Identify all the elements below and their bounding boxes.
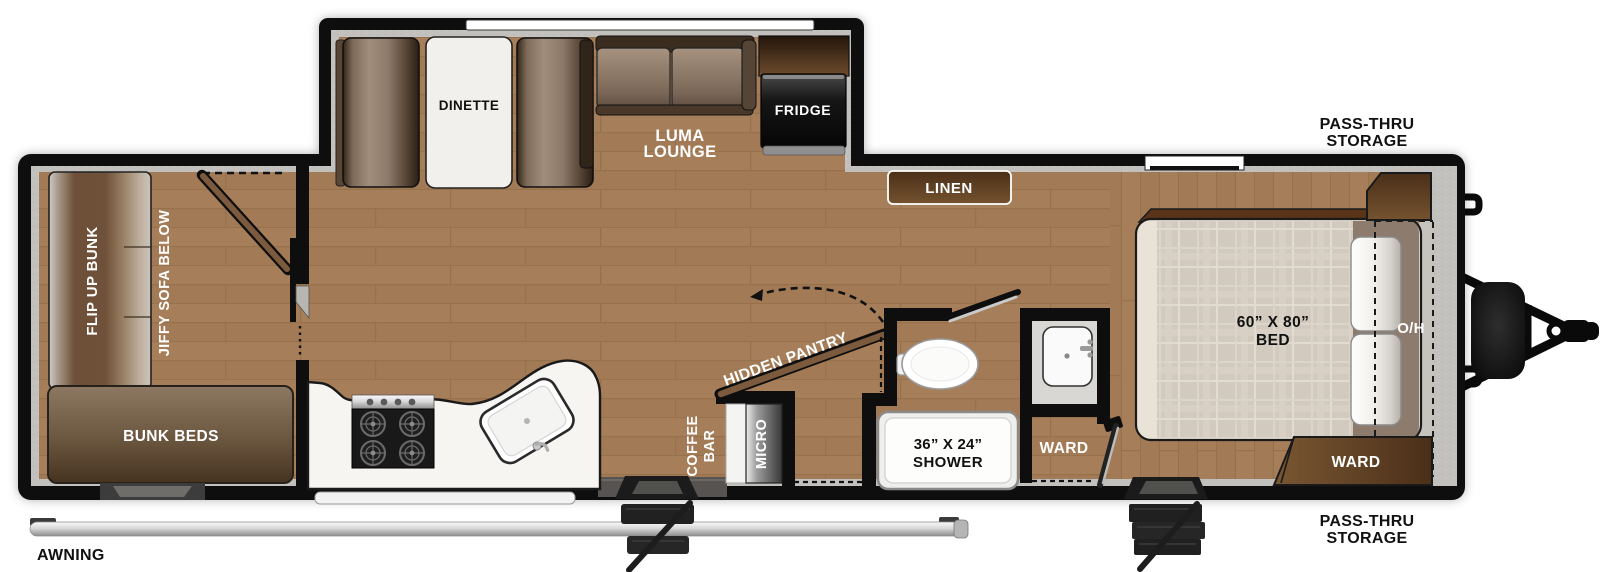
svg-text:BED: BED [1256,332,1290,349]
svg-text:BAR: BAR [702,430,718,463]
svg-text:PASS-THRU: PASS-THRU [1320,513,1415,530]
svg-text:PASS-THRU: PASS-THRU [1320,116,1415,133]
svg-text:BUNK BEDS: BUNK BEDS [123,428,219,445]
svg-text:WARD: WARD [1332,454,1381,471]
svg-text:36” X 24”: 36” X 24” [914,436,983,453]
svg-text:STORAGE: STORAGE [1327,133,1408,150]
svg-text:60” X 80”: 60” X 80” [1237,314,1310,331]
svg-text:SHOWER: SHOWER [913,454,983,471]
svg-text:DINETTE: DINETTE [439,98,500,113]
svg-text:WARD: WARD [1040,440,1089,457]
svg-text:AWNING: AWNING [37,547,105,564]
svg-text:COFFEE: COFFEE [685,415,701,476]
svg-text:JIFFY SOFA BELOW: JIFFY SOFA BELOW [157,210,173,357]
svg-text:FRIDGE: FRIDGE [775,102,832,118]
svg-text:MICRO: MICRO [754,419,770,469]
svg-text:FLIP UP BUNK: FLIP UP BUNK [84,226,101,335]
svg-text:LOUNGE: LOUNGE [644,143,717,161]
svg-text:O/H: O/H [1397,320,1425,337]
svg-text:LINEN: LINEN [925,180,973,197]
svg-text:STORAGE: STORAGE [1327,530,1408,547]
